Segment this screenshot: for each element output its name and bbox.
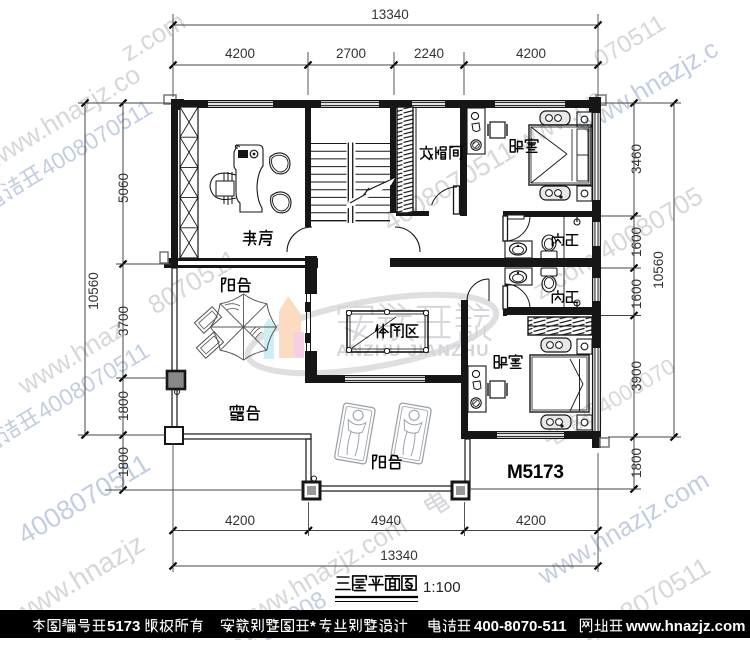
svg-text:13340: 13340 (380, 548, 418, 563)
svg-text:www.hnazjz.com: www.hnazjz.com (625, 618, 745, 635)
svg-text:1600: 1600 (629, 227, 644, 257)
svg-text:1800: 1800 (116, 447, 131, 477)
svg-text:1800: 1800 (629, 448, 644, 478)
svg-text:5173: 5173 (107, 618, 140, 635)
svg-text:2240: 2240 (414, 46, 444, 61)
svg-text:1800: 1800 (116, 391, 131, 421)
svg-text:400-8070-511: 400-8070-511 (474, 618, 567, 635)
svg-text:4200: 4200 (225, 46, 255, 61)
svg-text:5060: 5060 (116, 173, 131, 203)
svg-text:4200: 4200 (516, 513, 546, 528)
svg-text:*: * (310, 618, 316, 635)
svg-text:4200: 4200 (225, 513, 255, 528)
svg-text:1600: 1600 (629, 279, 644, 309)
svg-text:4940: 4940 (371, 513, 401, 528)
svg-text:M5173: M5173 (507, 462, 564, 483)
svg-text:10560: 10560 (651, 251, 666, 289)
svg-text:4200: 4200 (516, 46, 546, 61)
svg-text:13340: 13340 (371, 7, 409, 22)
svg-text:3700: 3700 (116, 306, 131, 336)
svg-text:2700: 2700 (336, 46, 366, 61)
svg-text:3900: 3900 (629, 361, 644, 391)
svg-text:10560: 10560 (86, 272, 101, 310)
svg-text:3460: 3460 (629, 144, 644, 174)
svg-text:1:100: 1:100 (423, 579, 461, 596)
